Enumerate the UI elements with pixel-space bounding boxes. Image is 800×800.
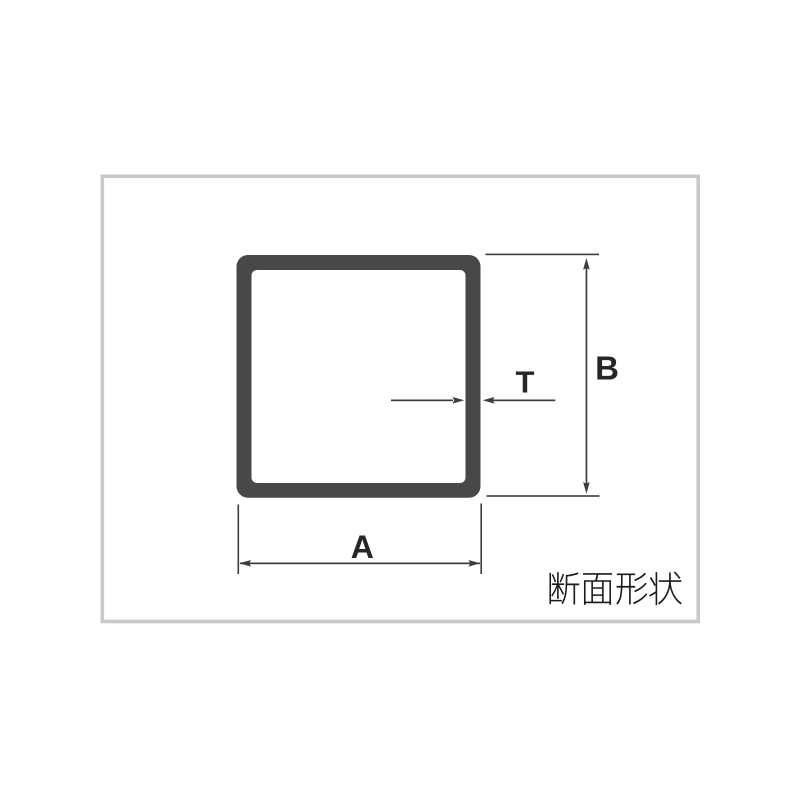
svg-text:T: T — [516, 365, 535, 400]
svg-text:B: B — [595, 350, 619, 387]
svg-text:A: A — [351, 529, 374, 565]
